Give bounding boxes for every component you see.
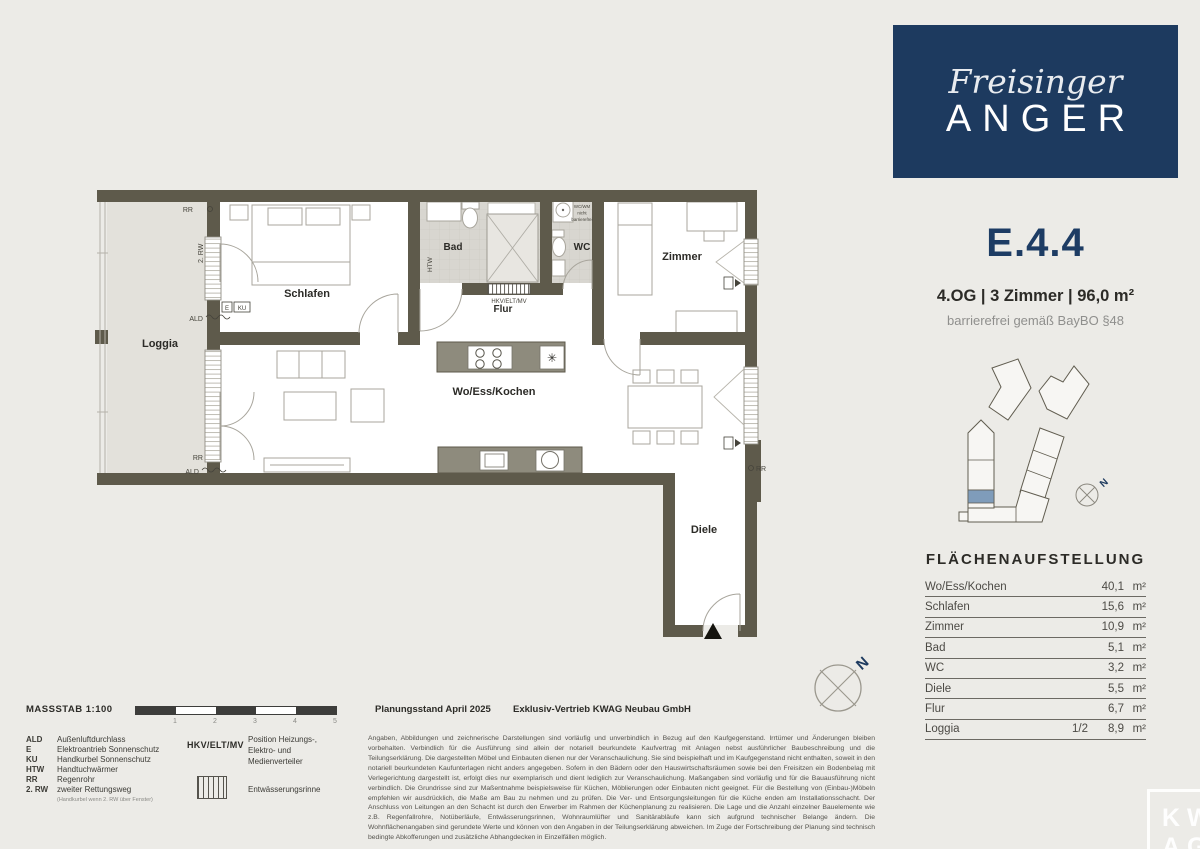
room-label-loggia: Loggia <box>142 338 179 350</box>
brand-script: Freisinger <box>949 65 1123 98</box>
annotation-ald-bottom: ALD <box>185 469 199 476</box>
kwag-watermark: KW AG <box>1147 789 1200 849</box>
legend-desc: Handkurbel Sonnenschutz <box>57 755 187 764</box>
table-row: Schlafen15,6m² <box>925 597 1146 617</box>
annotation-wcwm-2: nicht <box>577 211 587 216</box>
site-building-a <box>989 359 1031 420</box>
unit-id: E.4.4 <box>893 221 1178 266</box>
table-row: WC3,2m² <box>925 659 1146 679</box>
annotation-wcwm-1: WC/WM <box>574 204 591 209</box>
legend-abbr: E <box>26 745 56 754</box>
annotation-ku: KU <box>238 306 246 312</box>
scale-tick: 3 <box>245 718 265 725</box>
legend-abbr: HTW <box>26 765 56 774</box>
annotation-2rw: 2. RW <box>198 243 205 263</box>
legend-abbr: RR <box>26 775 56 784</box>
legend-abbr: 2. RW <box>26 785 56 794</box>
legend-desc: Handtuchwärmer <box>57 765 187 774</box>
room-label-schlafen: Schlafen <box>284 288 330 300</box>
sales-vendor: Exklusiv-Vertrieb KWAG Neubau GmbH <box>513 704 691 715</box>
legend-rw-note: (Handkurbel wenn 2. RW über Fenster) <box>57 797 153 803</box>
legend-desc: Elektroantrieb Sonnenschutz <box>57 745 187 754</box>
scale-label: MASSSTAB 1:100 <box>26 704 113 715</box>
site-building-d <box>1020 428 1064 501</box>
entrance-arrow-icon <box>704 623 722 639</box>
scale-tick: 5 <box>325 718 345 725</box>
svg-text:N: N <box>1098 477 1111 490</box>
annotation-e: E <box>225 306 229 312</box>
annotation-rro: RR <box>183 207 193 214</box>
diele-floor <box>675 473 745 625</box>
table-row: Diele5,5m² <box>925 679 1146 699</box>
planning-status: Planungsstand April 2025 <box>375 704 491 715</box>
annotation-wcwm-3: barrierefrei <box>571 217 592 222</box>
legend-abbr: ALD <box>26 735 56 744</box>
scale-tick: 2 <box>205 718 225 725</box>
annotation-hkv: HKV/ELT/MV <box>491 299 526 305</box>
room-label-wc: WC <box>574 242 591 253</box>
legend-desc: Außenluftdurchlass <box>57 735 187 744</box>
table-row: Flur6,7m² <box>925 699 1146 719</box>
legend-desc: zweiter Rettungsweg <box>57 785 187 794</box>
area-table-title: FLÄCHENAUFSTELLUNG <box>925 551 1146 568</box>
brand-caps: ANGER <box>935 100 1136 138</box>
unit-info: 4.OG | 3 Zimmer | 96,0 m² <box>893 287 1178 306</box>
floor-plan-drawing: ✳ <box>90 185 780 663</box>
legend-desc: Regenrohr <box>57 775 187 784</box>
room-label-bad: Bad <box>444 242 463 253</box>
site-compass-icon: N <box>1076 477 1111 506</box>
legend-hkv-label: HKV/ELT/MV <box>187 740 244 750</box>
room-label-zimmer: Zimmer <box>662 251 702 263</box>
north-compass-icon: N <box>805 650 877 722</box>
table-row: Wo/Ess/Kochen40,1m² <box>925 577 1146 597</box>
annotation-ald-top: ALD <box>189 316 203 323</box>
scale-tick: 1 <box>165 718 185 725</box>
area-table: Wo/Ess/Kochen40,1m² Schlafen15,6m² Zimme… <box>925 577 1146 740</box>
table-row: Zimmer10,9m² <box>925 618 1146 638</box>
unit-accessibility-note: barrierefrei gemäß BayBO §48 <box>893 313 1178 328</box>
legend-hkv-desc: Position Heizungs-, Elektro- und Medienv… <box>248 735 317 767</box>
annotation-htw: HTW <box>427 256 434 272</box>
site-plan: N <box>935 338 1150 538</box>
disclaimer-text: Angaben, Abbildungen und zeichnerische D… <box>368 734 875 843</box>
site-highlighted-unit <box>968 490 994 503</box>
table-row: Loggia1/28,9m² <box>925 720 1146 740</box>
brand-logo: Freisinger ANGER <box>893 25 1178 178</box>
annotation-rr-right: RR <box>756 466 766 473</box>
site-building-b <box>1039 366 1089 419</box>
scale-tick: 4 <box>285 718 305 725</box>
legend-rinne-label: Entwässerungsrinne <box>248 785 320 794</box>
plan-sheet: ✳ <box>0 0 1200 849</box>
table-row: Bad5,1m² <box>925 638 1146 658</box>
drainage-channel-icon <box>197 776 227 799</box>
hkv-marker <box>488 284 530 294</box>
annotation-rr-bottom: RR <box>193 455 203 462</box>
room-label-diele: Diele <box>691 524 717 536</box>
room-label-flur: Flur <box>494 304 513 315</box>
freezer-star-icon: ✳ <box>547 351 557 365</box>
room-label-wohnen: Wo/Ess/Kochen <box>453 386 536 398</box>
scale-bar <box>135 706 337 715</box>
legend-abbr: KU <box>26 755 56 764</box>
